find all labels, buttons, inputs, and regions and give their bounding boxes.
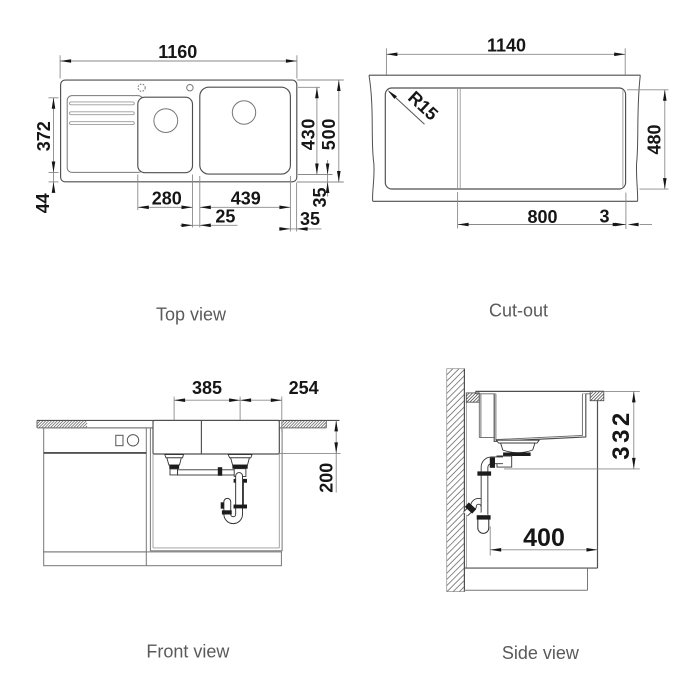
svg-text:Front view: Front view — [146, 642, 230, 662]
svg-text:400: 400 — [523, 524, 565, 552]
svg-text:Top view: Top view — [156, 305, 227, 325]
svg-text:800: 800 — [527, 207, 557, 227]
svg-text:35: 35 — [300, 209, 320, 229]
svg-text:332: 332 — [608, 409, 635, 460]
svg-text:25: 25 — [215, 206, 235, 226]
svg-text:430: 430 — [299, 118, 319, 150]
svg-text:1140: 1140 — [487, 36, 526, 56]
svg-text:500: 500 — [319, 118, 339, 150]
svg-text:Cut-out: Cut-out — [489, 301, 548, 321]
svg-text:1160: 1160 — [158, 42, 197, 62]
svg-text:280: 280 — [152, 189, 182, 209]
svg-text:385: 385 — [192, 378, 222, 398]
svg-text:200: 200 — [316, 463, 336, 493]
svg-text:372: 372 — [34, 121, 54, 151]
svg-text:35: 35 — [310, 187, 330, 207]
svg-text:3: 3 — [599, 207, 609, 227]
svg-text:Side view: Side view — [502, 643, 580, 663]
svg-text:480: 480 — [645, 124, 665, 154]
svg-text:44: 44 — [33, 193, 53, 213]
svg-text:254: 254 — [289, 378, 319, 398]
